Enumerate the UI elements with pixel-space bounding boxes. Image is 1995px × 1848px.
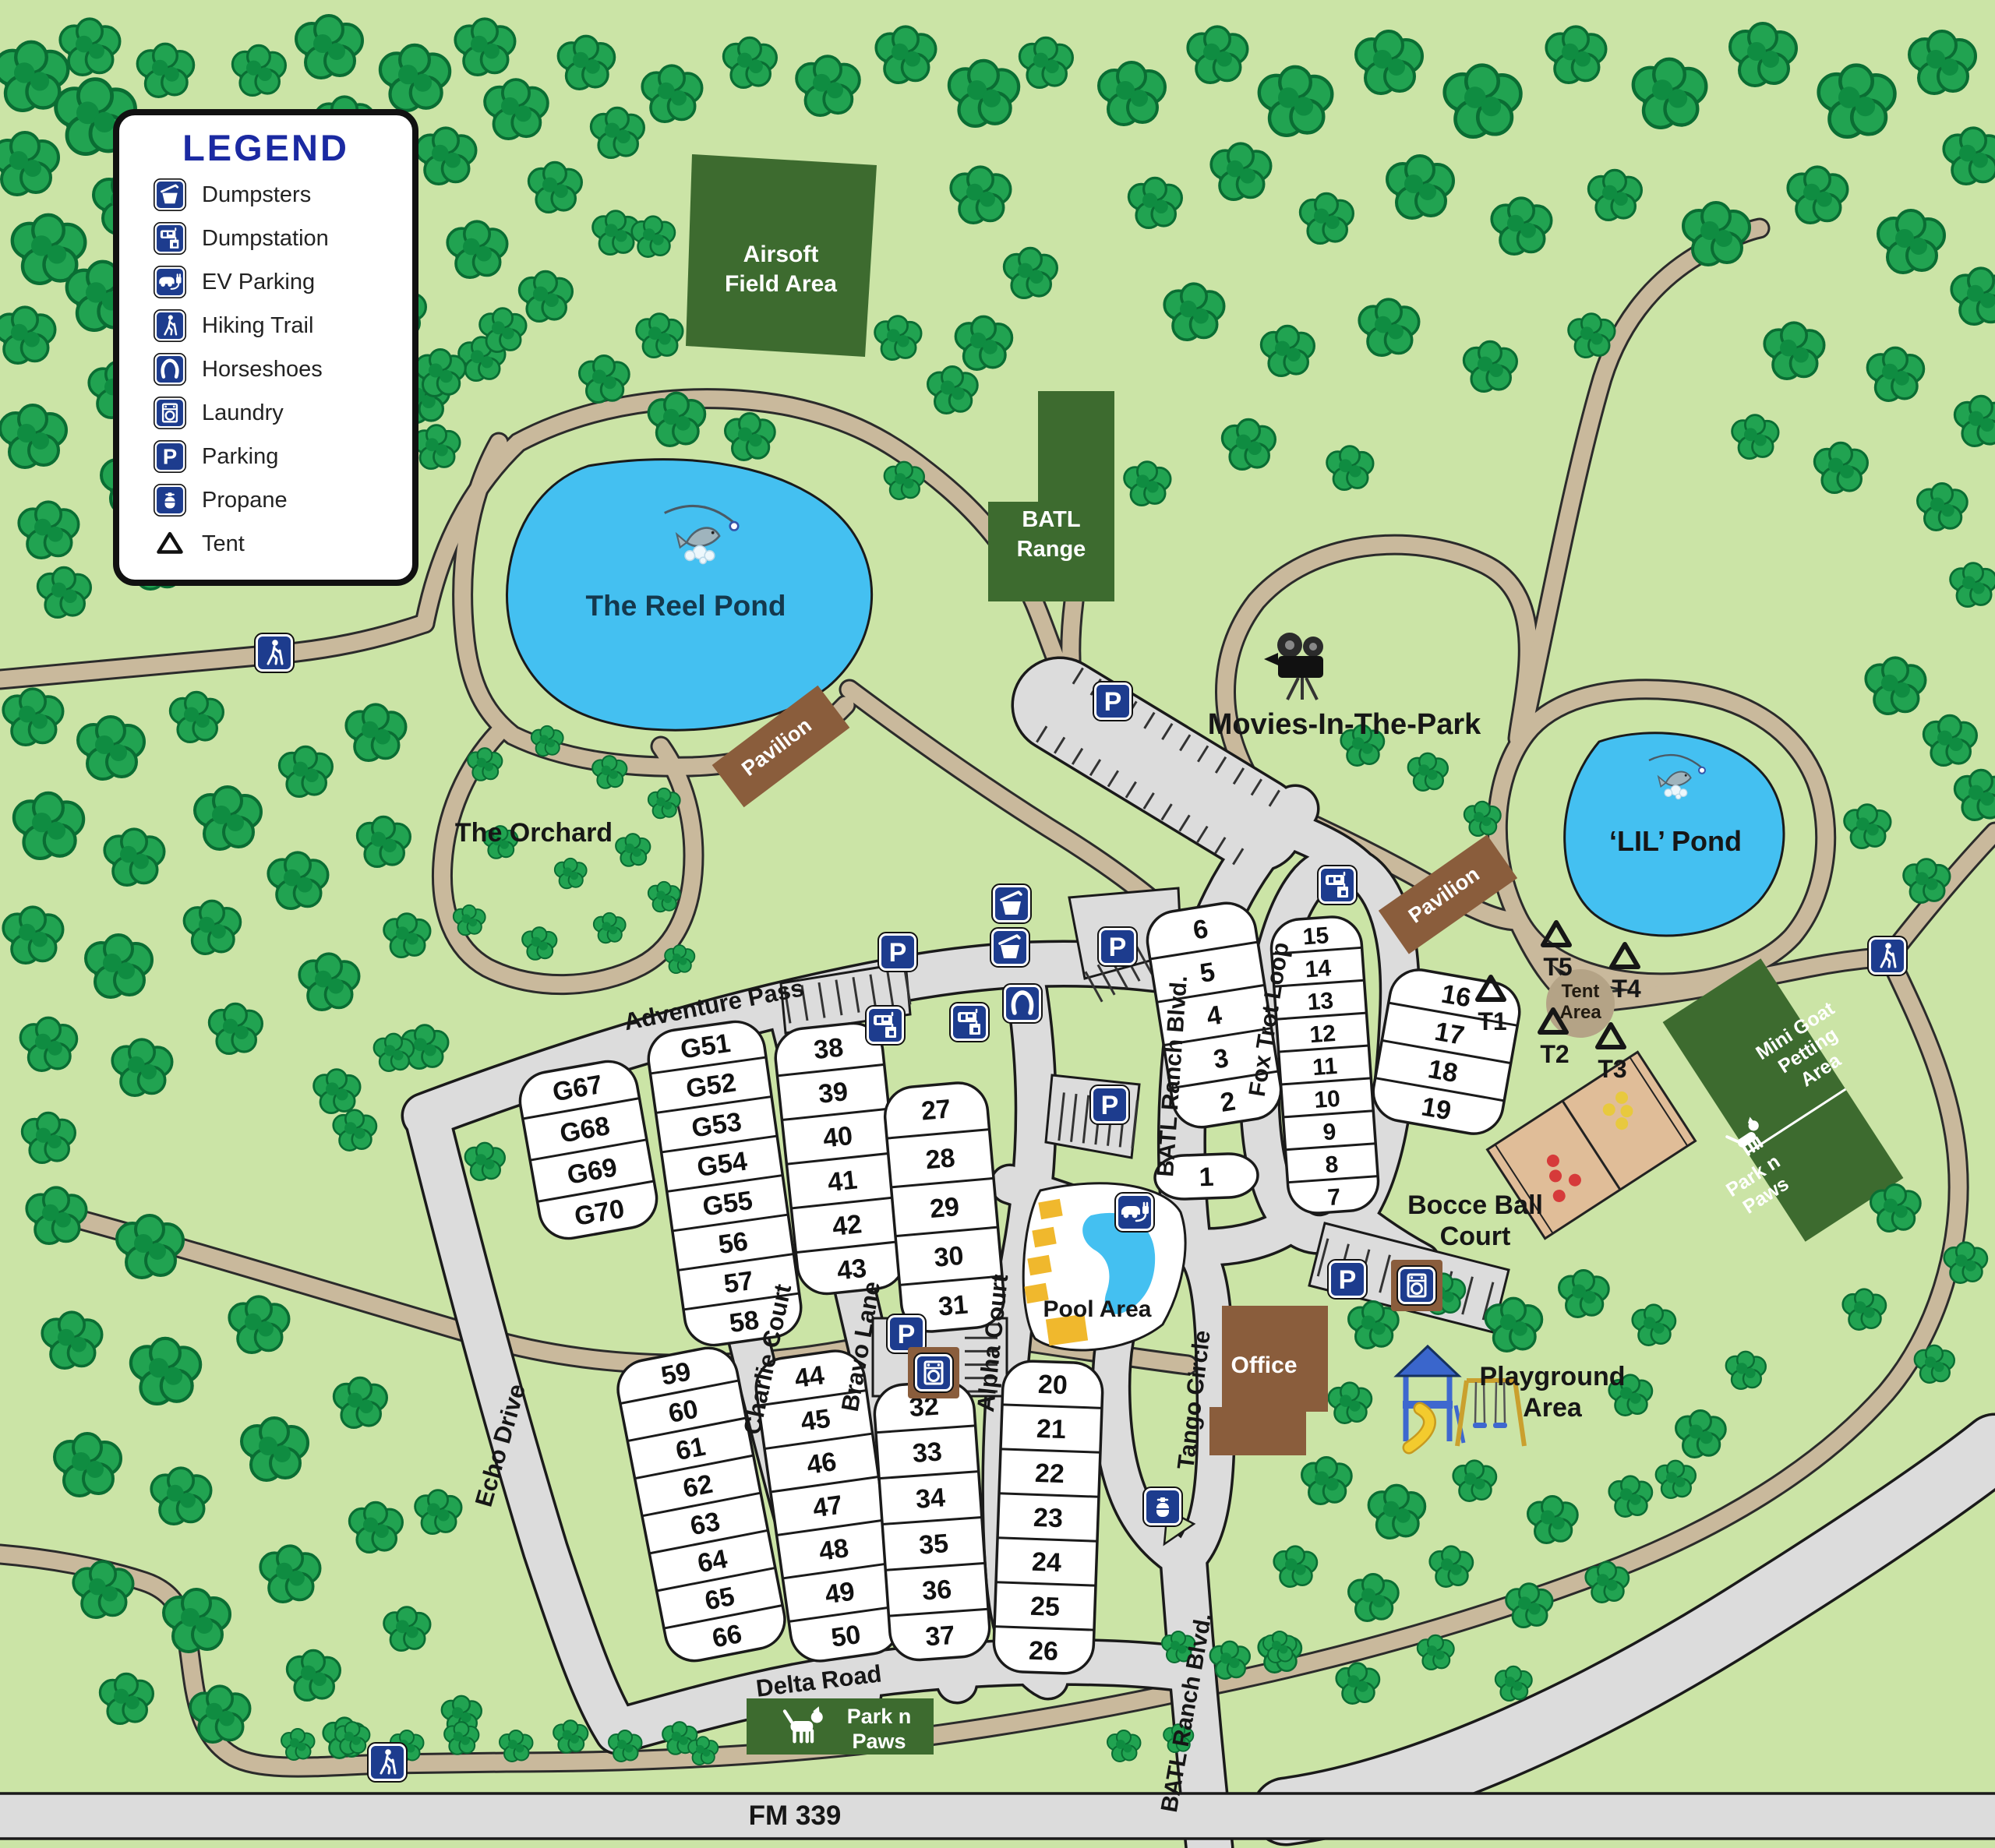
tree [632,217,675,257]
tree [0,405,66,467]
tree [500,1730,533,1762]
legend-item-label: EV Parking [202,270,315,295]
tree [20,1017,76,1070]
site-number: 57 [722,1266,756,1300]
tree [1866,658,1926,714]
tree [1588,170,1641,220]
legend-item-label: Dumpsters [202,182,311,208]
tree [1359,299,1419,355]
ev-icon [1115,1193,1154,1232]
tree [86,935,152,997]
svg-text:P: P [163,445,177,469]
splash [685,551,695,561]
tree [260,1546,320,1602]
laundry-icon [1397,1266,1436,1305]
tree [591,108,644,157]
site-number: 47 [811,1490,845,1524]
tent-site-label: T5 [1543,953,1572,981]
site-number: 24 [1031,1547,1061,1578]
tree [112,1039,172,1095]
dumpstation-icon [866,1006,905,1045]
tree [648,393,704,446]
tree [26,1187,87,1243]
site-number: 7 [1326,1184,1341,1211]
dumpstation-icon [154,222,186,255]
tree [648,882,680,912]
site-number: 41 [826,1165,859,1197]
tree [1259,67,1333,136]
bocce-label-text: Bocce Ball [1407,1190,1543,1220]
site-number: 60 [666,1394,701,1429]
horseshoes-icon [154,353,186,386]
legend-item-label: Propane [202,488,288,513]
tree [616,834,650,866]
hiking-icon [255,633,294,672]
tree [454,905,486,935]
site-number: 21 [1036,1414,1066,1444]
tree [279,746,332,796]
tree [137,44,193,97]
tree [726,414,775,460]
tree [447,221,507,277]
tree [3,907,63,963]
tree [1336,1663,1379,1704]
tree [380,45,450,111]
tree [553,1720,588,1753]
tree [796,56,860,115]
site-number: 1 [1199,1162,1214,1193]
tree [287,1650,340,1700]
site-number: 9 [1322,1119,1337,1145]
tent-site-label: T2 [1540,1040,1569,1068]
site-number: 49 [823,1576,856,1610]
site-number: 61 [673,1432,708,1467]
splash [1665,789,1672,797]
tree [1506,1584,1553,1628]
tree [1656,1461,1696,1498]
svg-text:P: P [1101,1091,1119,1120]
tree [1349,1302,1399,1349]
tree [1569,314,1615,358]
campground-map: G67G68G69G70G51G52G53G54G555657583839404… [0,0,1995,1848]
tree [688,1737,718,1765]
tree [1909,31,1976,93]
office-label-text: Office [1231,1352,1297,1378]
lil-pond-label: ‘LIL’ Pond [1609,825,1742,857]
site-number: 15 [1302,922,1330,950]
tree [648,788,680,818]
laundry-icon [154,397,186,429]
tree [151,1468,211,1524]
tree [60,19,120,75]
site-number: 26 [1028,1636,1058,1666]
fm-339-road [0,1793,1995,1839]
tree [1430,1546,1473,1587]
parking-icon: P [1093,682,1132,721]
legend-item-label: Horseshoes [202,357,323,383]
tree [1951,563,1995,607]
site-number: 35 [918,1529,949,1561]
tree [519,271,572,321]
tree [1453,1461,1496,1501]
tree [416,128,476,184]
tree [1732,415,1779,459]
site-number: 16 [1439,979,1474,1014]
tent-site-label: T4 [1612,975,1641,1003]
site-number: 56 [716,1226,750,1260]
tree [1819,65,1895,137]
tree [1788,167,1848,223]
site-number: 31 [937,1289,969,1321]
site-number: 22 [1034,1458,1065,1489]
office-label: Office [1231,1352,1297,1378]
tree [1730,23,1796,86]
tree [465,1143,505,1180]
park-n-paws-bottom-label-text: Park n [847,1705,912,1728]
tree [1867,347,1923,400]
tree [949,61,1019,126]
legend-item-hiking-trail: Hiking Trail [154,308,412,344]
tree [268,852,328,908]
propane-icon [154,484,186,517]
tree [1871,1185,1921,1232]
site-number: 20 [1037,1370,1068,1400]
tree [1464,341,1517,391]
tent-area-label-text: Area [1559,1002,1601,1023]
tree [1923,715,1976,765]
site-column-c20: 20212223242526 [993,1360,1103,1674]
tree [1683,203,1750,265]
tree [1464,802,1501,836]
svg-text:P: P [1104,687,1122,717]
site-number: 45 [799,1404,832,1437]
tree [1418,1635,1454,1670]
orchard-label-text: The Orchard [455,818,613,848]
pool-area-label-text: Pool Area [1043,1296,1152,1322]
tree [1210,1642,1250,1679]
tree [444,1722,478,1755]
tree [349,1502,402,1552]
horseshoes-icon [1003,984,1042,1023]
site-number: 10 [1313,1086,1341,1113]
site-number: 27 [920,1094,952,1126]
orchard-label: The Orchard [455,818,613,848]
swing-seat [1493,1423,1507,1428]
tree [1349,1575,1399,1621]
site-column-c32: 323334353637 [873,1380,991,1662]
batl-range-label-text: Range [1017,537,1086,562]
legend-item-label: Hiking Trail [202,313,313,339]
site-number: 14 [1305,955,1333,982]
site-number: 13 [1307,988,1335,1015]
bocce-label-text: Court [1440,1222,1511,1251]
dumpster-icon [990,928,1029,967]
batl-range-label-text: BATL [1022,507,1080,532]
tree [1188,26,1248,83]
tree [1327,446,1374,490]
site-number: 29 [929,1192,961,1224]
tree [1814,443,1867,492]
tent-icon [154,527,186,560]
tree [642,65,702,122]
site-number: 48 [817,1533,851,1567]
site-number: 36 [921,1575,952,1606]
tree [190,1686,250,1742]
site-number: 39 [817,1077,849,1109]
tree [1764,323,1824,379]
fm-339-label-text: FM 339 [749,1800,842,1831]
tree [1128,178,1181,227]
site-number: 62 [680,1469,715,1504]
tree [1302,1458,1352,1504]
tree [299,954,359,1010]
splash [700,557,706,563]
legend: LEGEND Dumpsters Dumpstation EV Parking … [113,109,418,586]
site-number: 33 [912,1437,943,1469]
site-number: 38 [812,1032,845,1065]
site-number: 18 [1426,1054,1460,1088]
tree [558,36,614,89]
legend-item-tent: Tent [154,526,412,562]
tree [955,316,1012,369]
tree [335,1722,369,1755]
tree [876,26,936,83]
tree [1387,156,1453,218]
tree [1125,462,1171,506]
tree [1918,484,1968,531]
tree [334,1110,376,1151]
swing-chain [1475,1382,1476,1423]
tree [555,859,587,888]
fm-339-surface [0,1793,1995,1839]
tree [0,307,55,363]
tree [37,567,90,617]
tree [1368,1485,1425,1538]
site-number: 50 [829,1620,863,1653]
tree [928,367,978,414]
dumpstation-icon [1318,866,1357,905]
tent-site-label: T1 [1478,1007,1506,1035]
tree [415,1490,462,1534]
tree [22,1113,75,1162]
tree [131,1338,200,1404]
tree [1586,1562,1629,1603]
tree [1408,753,1448,791]
tree [42,1312,102,1368]
tree [951,167,1011,223]
legend-item-label: Dumpstation [202,226,329,252]
tree [592,756,627,788]
legend-item-dumpstation: Dumpstation [154,220,412,256]
tree [609,1730,642,1762]
tree [1878,210,1944,273]
dumpster-icon [992,884,1031,923]
tree [723,37,776,87]
propane-icon [1143,1487,1182,1526]
tree [416,350,466,397]
tree [0,132,58,195]
tree [346,704,406,760]
fm-339-label: FM 339 [749,1800,842,1831]
tree [1004,248,1057,298]
legend-item-dumpsters: Dumpsters [154,177,412,213]
tree [55,1434,121,1496]
tree [164,1589,230,1652]
site-number: 34 [915,1483,946,1515]
tree [1445,65,1521,137]
tree [1164,284,1224,340]
tree [1676,1411,1726,1458]
site-number: 65 [702,1582,736,1617]
tree [531,726,563,756]
legend-item-horseshoes: Horseshoes [154,351,412,387]
svg-text:P: P [1109,933,1127,962]
site-number: 37 [924,1621,955,1652]
tree [1274,1546,1317,1587]
svg-text:P: P [1339,1265,1357,1295]
tree [1300,193,1353,243]
tree [1329,1383,1372,1423]
swing-seat [1473,1423,1487,1428]
tree [1099,62,1165,125]
laundry-icon [914,1353,953,1392]
bobber [730,522,739,531]
legend-item-label: Tent [202,531,245,557]
tree [885,462,924,499]
tree [1609,1476,1652,1517]
legend-item-label: Laundry [202,400,284,426]
tree [468,748,502,781]
tree [73,1561,133,1617]
site-number: 58 [728,1305,761,1338]
site-number: 23 [1033,1503,1063,1533]
tree [480,309,527,352]
tree [637,314,683,358]
tree [104,829,164,885]
tree [1633,1305,1675,1345]
tree [357,816,410,866]
tree [1843,1289,1886,1330]
tree [78,717,144,779]
tree [117,1215,183,1278]
site-number: 66 [710,1619,744,1654]
airsoft-field-label-text: Field Area [725,271,837,297]
ev-parking-icon [154,266,186,298]
tree [665,945,694,973]
tree [1485,1298,1541,1351]
tree [281,1729,315,1760]
tree [1944,1243,1987,1283]
site-number: 11 [1312,1053,1338,1081]
tree [1546,26,1606,83]
site-number: 44 [793,1360,826,1394]
tree [522,927,556,960]
tree [1492,198,1552,254]
parking-icon: P [1090,1085,1129,1124]
tree [1211,143,1271,199]
tree [414,425,461,469]
site-number: 46 [805,1447,839,1480]
tree [1528,1497,1578,1543]
tree [1559,1271,1609,1317]
legend-item-label: Parking [202,444,278,470]
site-number: 59 [659,1356,693,1391]
site-number: 17 [1432,1017,1467,1051]
tree [209,1003,262,1053]
svg-text:P: P [889,938,907,968]
playground-label-text: Playground [1479,1362,1625,1391]
tree [1633,59,1707,128]
park-n-paws-bottom-label-text: Paws [852,1730,906,1753]
tree [528,162,581,212]
site-number: 28 [924,1143,956,1175]
tree [485,79,548,139]
tree [14,793,83,859]
tree [580,356,630,403]
parking-icon: P [1098,927,1137,966]
fish-eye [1685,774,1687,777]
site-number: 42 [831,1209,863,1242]
site-number: 40 [821,1121,854,1154]
parking-icon: P [1328,1260,1367,1299]
parking-icon: P [154,440,186,473]
site-number: 64 [695,1544,729,1579]
site-number: 8 [1324,1151,1339,1178]
tree [1261,326,1314,376]
tree [296,16,362,78]
site-number: 12 [1308,1021,1336,1048]
parking-icon: P [878,933,917,972]
movies-label: Movies-In-The-Park [1208,708,1481,741]
lil-pond-label-text: ‘LIL’ Pond [1609,825,1742,857]
tree [1019,37,1072,87]
movies-label-text: Movies-In-The-Park [1208,708,1481,741]
site-number: 63 [688,1507,722,1542]
tree [19,502,79,558]
tree [334,1377,387,1427]
tree [1845,805,1891,848]
tree [1726,1352,1766,1389]
tree [1915,1345,1954,1383]
tree [170,692,223,742]
tree [314,1070,361,1113]
fish-eye [711,531,715,534]
tree [1356,31,1422,93]
splash [1675,794,1680,799]
tree [3,689,63,745]
legend-title: LEGEND [119,126,412,169]
legend-item-laundry: Laundry [154,395,412,431]
dumpstation-icon [950,1003,989,1042]
tree [100,1673,153,1723]
tree [594,913,626,943]
site-number: 25 [1029,1592,1060,1622]
tree [875,316,922,360]
tent-area-label-text: Tent [1562,981,1600,1002]
tree [1222,419,1275,469]
legend-item-parking: P Parking [154,439,412,474]
tree [1495,1666,1532,1701]
site-number: 19 [1419,1092,1453,1126]
tree [1263,1631,1297,1663]
dumpster-icon [154,178,186,211]
site-number: 30 [933,1241,965,1273]
reel-pond-label-text: The Reel Pond [586,590,786,622]
pool-area-label: Pool Area [1043,1296,1152,1322]
playground-label-text: Area [1523,1393,1583,1423]
reel-pond-label: The Reel Pond [586,590,786,622]
tree [229,1296,289,1352]
